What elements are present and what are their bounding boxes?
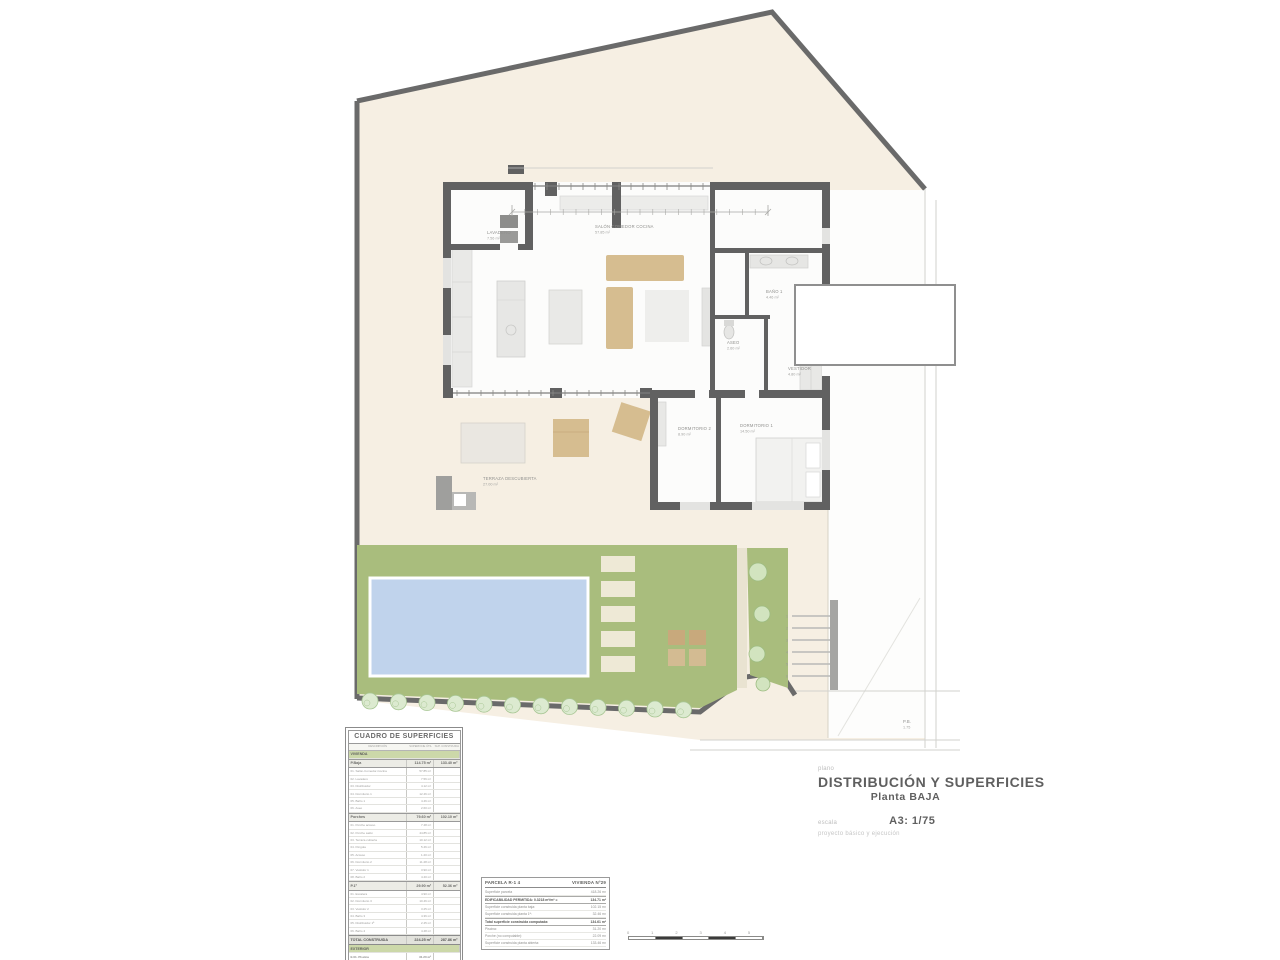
surfaces-row: VIVIENDA: [349, 751, 460, 759]
surfaces-row: 04. Dormitorio 112.46 m²: [349, 790, 460, 797]
info-row: Porche (no computable):22.09 m²: [485, 933, 606, 940]
bath-counter: [750, 255, 808, 268]
surfaces-row: E.01. Piscina31.20 m²: [349, 953, 460, 960]
scale-bar-ticks: 012345: [628, 930, 773, 935]
parcel-info-header: PARCELA R-1 4 VIVIENDA Nº29: [485, 880, 606, 888]
info-row: Total superficie construida computada:13…: [485, 918, 606, 926]
hedge-shrub: [476, 696, 492, 712]
room-area: 14.50 m²: [740, 430, 756, 434]
escala-label: escala: [818, 820, 837, 826]
room-label: P.B.: [903, 719, 911, 724]
title-block: plano DISTRIBUCIÓN Y SUPERFICIES Planta …: [818, 766, 993, 837]
hedge-shrub: [505, 697, 521, 713]
scale-segment: [736, 937, 763, 939]
col-descripcion: DESCRIPCIÓN: [349, 744, 407, 750]
surfaces-row: 05. Acceso1.20 m²: [349, 852, 460, 859]
surfaces-row: 06. Baño 44.48 m²: [349, 928, 460, 935]
washer: [500, 215, 518, 228]
surfaces-row: 04. Pérgola5.46 m²: [349, 844, 460, 851]
scale-tick: 2: [675, 930, 699, 935]
stair-number: 5: [786, 663, 788, 667]
sheet-subtitle: Planta BAJA: [818, 791, 993, 803]
surfaces-row: 05. Distribuidor 1ª2.45 m²: [349, 920, 460, 927]
lounge-chair-1: [553, 419, 589, 457]
surfaces-row: 08. Baño 24.40 m²: [349, 874, 460, 881]
col-superficie-util: SUPERFICIE ÚTIL: [407, 744, 434, 750]
scale-tick: 0: [627, 930, 651, 935]
surfaces-row: 04. Baño 34.36 m²: [349, 913, 460, 920]
scale-segment: [683, 937, 710, 939]
scale-bar-segments: [628, 936, 764, 940]
room-label: VESTIDOR: [788, 366, 811, 371]
scale-segment: [656, 937, 683, 939]
surfaces-row: 02. Lavadero7.56 m²: [349, 776, 460, 783]
kitchen-island: [497, 281, 525, 357]
hedge-shrub: [676, 702, 692, 718]
driveway-court: [828, 190, 925, 738]
room-label: DORMITORIO 2: [678, 426, 712, 431]
stair-number: 4: [786, 651, 788, 655]
hedge-shrub: [562, 699, 578, 715]
room-area: 57.85 m²: [595, 231, 611, 235]
room-area: 4.80 m²: [788, 373, 802, 377]
plan-sheet: 123456 LAVADERO7.56 m²SALÓN COMEDOR COCI…: [0, 0, 1280, 960]
col-sup-construida: SUP. CONSTRUIDA: [434, 744, 459, 750]
room-area: 8.90 m²: [678, 433, 692, 437]
kitchen-cabinets: [560, 196, 708, 210]
info-row: Superficie construida planta 1ª:32.46 m²: [485, 911, 606, 918]
garden-path: [737, 548, 747, 688]
stair-number: 6: [786, 675, 788, 679]
info-row: Superficie parcela418.26 m²: [485, 889, 606, 896]
plano-label: plano: [818, 766, 993, 772]
surfaces-table-columns: DESCRIPCIÓN SUPERFICIE ÚTIL SUP. CONSTRU…: [349, 744, 460, 751]
toilet: [724, 325, 734, 339]
sofa-chaise: [606, 287, 633, 349]
surfaces-row: 03. Distribuidor4.12 m²: [349, 783, 460, 790]
room-label: ASEO: [727, 340, 740, 345]
scale-bar: 012345: [628, 930, 773, 940]
escala-value: A3: 1/75: [889, 815, 935, 827]
surfaces-row: 02. Porche salón44.85 m²: [349, 830, 460, 837]
garage: [795, 285, 955, 365]
hedge-shrub: [362, 693, 378, 709]
hedge-shrub: [533, 698, 549, 714]
surfaces-row: 02. Dormitorio 310.46 m²: [349, 898, 460, 905]
surfaces-row: 01. Escalera4.90 m²: [349, 891, 460, 898]
parcel-info-rows: Superficie parcela418.26 m²EDIFICABILIDA…: [485, 889, 606, 947]
hedge-shrub: [647, 701, 663, 717]
porch-table: [461, 423, 525, 463]
site-plan-drawing: 123456 LAVADERO7.56 m²SALÓN COMEDOR COCI…: [0, 0, 1280, 960]
surfaces-row: 06. Dormitorio 211.28 m²: [349, 859, 460, 866]
sofa: [606, 255, 684, 281]
vivienda-id: VIVIENDA Nº29: [572, 880, 606, 885]
room-label: TERRAZA DESCUBIERTA: [483, 476, 537, 481]
room-area: 7.56 m²: [487, 237, 501, 241]
scale-segment: [629, 937, 656, 939]
room-area: 27.00 m²: [483, 483, 499, 487]
surfaces-row: 03. Terraza cubierta10.12 m²: [349, 837, 460, 844]
stair-number: 2: [786, 627, 788, 631]
surfaces-table-rows: VIVIENDAP.Baja114.75 m²133.40 m²01. Saló…: [349, 751, 460, 960]
hedge-shrub: [448, 695, 464, 711]
surfaces-row: Porches79.60 m²102.10 m²: [349, 813, 460, 823]
hedge-shrub: [419, 695, 435, 711]
room-label: LAVADERO: [487, 230, 511, 235]
parcel-id: PARCELA R-1 4: [485, 880, 520, 885]
hedge-shrub: [619, 700, 635, 716]
info-row: Piscina:31.20 m²: [485, 926, 606, 933]
surfaces-row: P.Baja114.75 m²133.40 m²: [349, 759, 460, 769]
scale-tick: 5: [748, 930, 772, 935]
surfaces-row: 06. Aseo2.60 m²: [349, 805, 460, 812]
info-row: EDIFICABILIDAD PERMITIDA: 0.3218 m²/m² =…: [485, 896, 606, 904]
paving-inset: [454, 494, 466, 506]
surfaces-row: 01. Salón-Comedor-Cocina57.85 m²: [349, 768, 460, 775]
surfaces-row: P.1ª29.90 m²52.36 m²: [349, 881, 460, 891]
surfaces-row: 07. Vestidor 13.90 m²: [349, 866, 460, 873]
surfaces-row: 03. Vestidor 23.25 m²: [349, 905, 460, 912]
surfaces-row: 01. Porche acceso7.48 m²: [349, 822, 460, 829]
room-label: DORMITORIO 1: [740, 423, 774, 428]
stair-number: 3: [786, 639, 788, 643]
scale-tick: 1: [651, 930, 675, 935]
dining-table: [549, 290, 582, 344]
pool: [370, 578, 588, 676]
surfaces-row: 05. Baño 14.46 m²: [349, 798, 460, 805]
surfaces-table: CUADRO DE SUPERFICIES DESCRIPCIÓN SUPERF…: [345, 727, 463, 960]
scale-tick: 3: [700, 930, 724, 935]
room-area: 1.75: [903, 726, 910, 730]
sheet-title: DISTRIBUCIÓN Y SUPERFICIES: [818, 774, 993, 790]
surfaces-row: EXTERIOR: [349, 945, 460, 953]
toilet-tank: [724, 320, 734, 326]
dimension-ticks: [512, 209, 768, 215]
info-row: Superficie construida planta baja:102.15…: [485, 904, 606, 911]
room-area: 4.46 m²: [766, 296, 780, 300]
info-row: Superficie construida planta abierta:133…: [485, 940, 606, 947]
scale-tick: 4: [724, 930, 748, 935]
garden: [357, 545, 788, 718]
paving-block-1: [436, 476, 452, 510]
stair-number: 1: [786, 615, 788, 619]
scale-segment: [709, 937, 736, 939]
surfaces-table-title: CUADRO DE SUPERFICIES: [349, 731, 460, 744]
project-note: proyecto básico y ejecución: [818, 831, 993, 837]
hedge-shrub: [391, 694, 407, 710]
room-label: SALÓN COMEDOR COCINA: [595, 224, 654, 229]
parcel-info-box: PARCELA R-1 4 VIVIENDA Nº29 Superficie p…: [481, 877, 610, 950]
hedge-shrub: [590, 699, 606, 715]
surfaces-row: TOTAL CONSTRUIDA224.25 m²287.86 m²: [349, 935, 460, 945]
rug: [645, 290, 689, 342]
room-area: 2.60 m²: [727, 347, 741, 351]
room-label: BAÑO 1: [766, 289, 783, 294]
